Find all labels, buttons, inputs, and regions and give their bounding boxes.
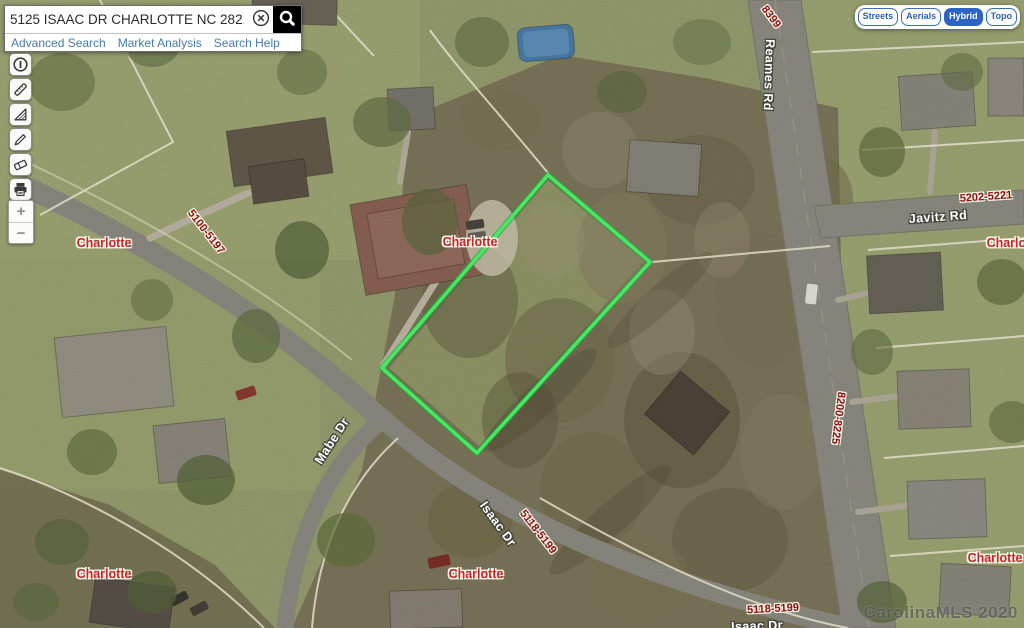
map-toolbar: [9, 53, 32, 201]
eraser-icon: [12, 156, 29, 173]
search-help-link[interactable]: Search Help: [214, 36, 280, 50]
search-magnifier-icon: [278, 9, 297, 31]
ruler-icon: [12, 81, 29, 98]
map-application: 8399Reames Rd5202-5221Javitz Rd5100-5197…: [0, 0, 1024, 628]
draw-tool-button[interactable]: [9, 128, 32, 151]
search-button[interactable]: [273, 6, 301, 33]
clear-circle-x-icon: [252, 9, 270, 30]
pencil-icon: [12, 131, 29, 148]
zoom-control: + −: [8, 200, 34, 244]
zoom-out-button[interactable]: −: [9, 222, 33, 243]
basemap-button-hybrid[interactable]: Hybrid: [944, 8, 983, 26]
search-row: [5, 6, 301, 34]
triangle-ruler-icon: [12, 106, 29, 123]
basemap-button-topo[interactable]: Topo: [986, 8, 1017, 26]
advanced-search-link[interactable]: Advanced Search: [11, 36, 106, 50]
zoom-in-button[interactable]: +: [9, 201, 33, 222]
clear-search-button[interactable]: [249, 8, 273, 32]
basemap-button-aerials[interactable]: Aerials: [901, 8, 941, 26]
measure-distance-tool-button[interactable]: [9, 78, 32, 101]
search-input[interactable]: [5, 12, 249, 27]
print-tool-button[interactable]: [9, 178, 32, 201]
basemap-button-streets[interactable]: Streets: [858, 8, 899, 26]
printer-icon: [12, 181, 29, 198]
market-analysis-link[interactable]: Market Analysis: [118, 36, 202, 50]
search-links-row: Advanced Search Market Analysis Search H…: [5, 34, 301, 51]
measure-area-tool-button[interactable]: [9, 103, 32, 126]
identify-tool-button[interactable]: [9, 53, 32, 76]
basemap-switcher: Streets Aerials Hybrid Topo: [855, 5, 1020, 29]
erase-tool-button[interactable]: [9, 153, 32, 176]
aerial-basemap[interactable]: [0, 0, 1024, 628]
identify-icon: [12, 56, 29, 73]
search-panel: Advanced Search Market Analysis Search H…: [4, 5, 302, 52]
